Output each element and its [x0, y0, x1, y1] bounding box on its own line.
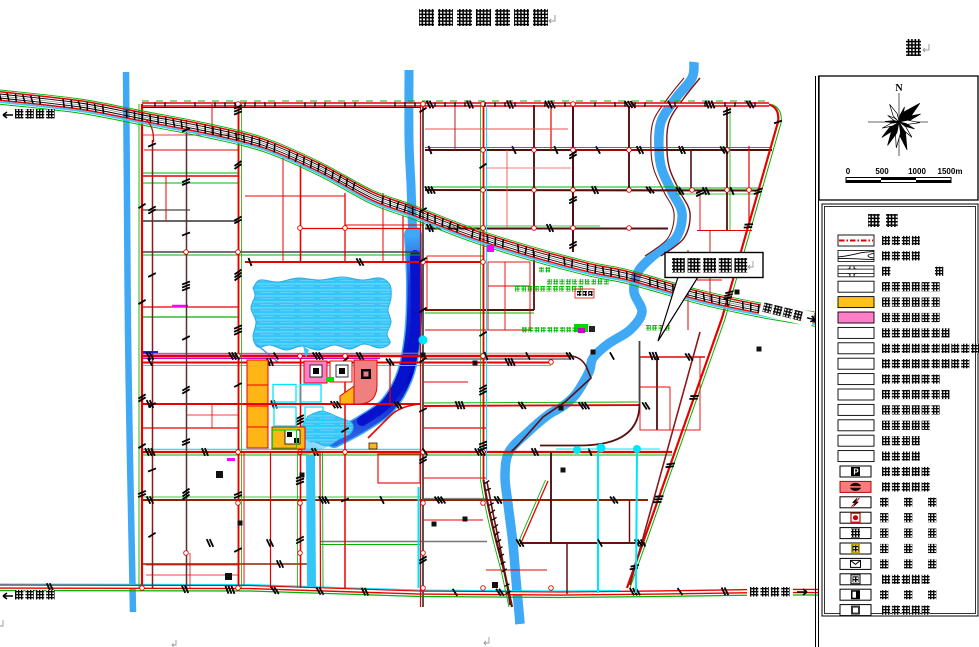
svg-text:1500m: 1500m: [938, 167, 963, 176]
svg-text:0: 0: [846, 167, 851, 176]
svg-text:P: P: [853, 468, 859, 477]
svg-text:1000: 1000: [908, 167, 926, 176]
svg-text:N: N: [895, 83, 903, 94]
svg-text:500: 500: [875, 167, 889, 176]
